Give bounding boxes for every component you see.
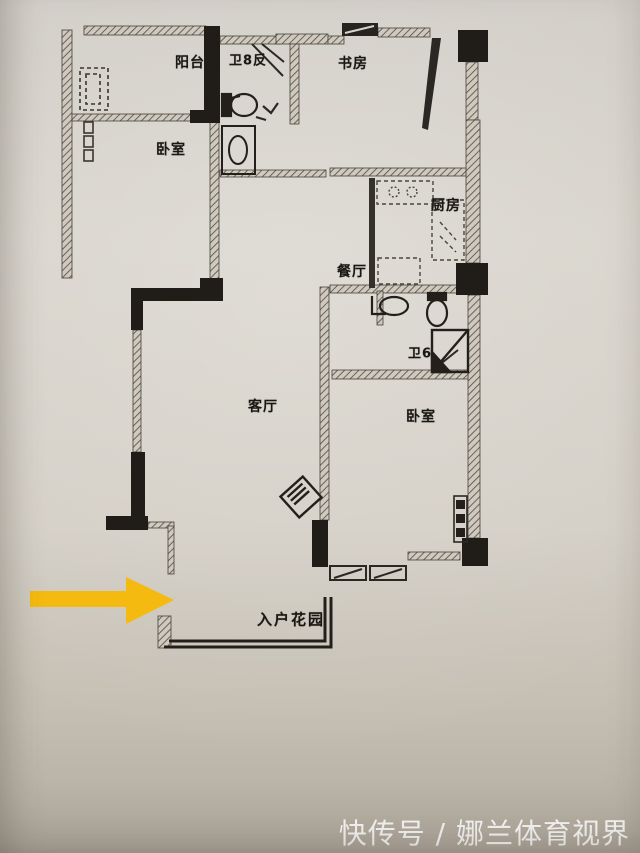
central-wall-foot [312,520,328,567]
room-label-study: 书房 [338,53,368,73]
room-label-kitchen: 厨房 [431,195,461,215]
entry-door-icon [422,38,441,130]
diamond-decor-icon [280,477,321,518]
room-label-entry-garden: 入户花园 [257,609,325,630]
room-label-bedroom-right: 卧室 [406,406,436,426]
step-vents [330,566,406,580]
shower-icon [432,330,468,372]
toilet2-icon [427,293,447,326]
door-mark-icon [256,103,278,120]
kitchen-wall [369,178,375,288]
highlight-arrow [30,577,174,624]
washbasin-icon [222,126,255,174]
watermark: 快传号 / 娜兰体育视界 [339,812,630,852]
floorplan-photo: 阳台 卫8反 书房 卧室 厨房 餐厅 客厅 卫6 卧室 入户花园 快传号 / 娜… [0,0,640,853]
room-label-bedroom-left: 卧室 [156,139,186,159]
column-mid-right [456,263,488,295]
balcony-bath-wall [204,26,220,114]
room-label-bathroom-top: 卫8反 [229,50,267,69]
room-label-living: 客厅 [248,396,278,416]
room-label-balcony: 阳台 [175,52,205,72]
floorplan-drawing [0,0,640,853]
window-icon [342,23,378,36]
room-label-bathroom-right: 卫6 [408,343,432,362]
toilet-icon [222,94,257,116]
bedroom-left-bottom-wall [131,288,223,301]
column-top-right [458,30,488,62]
room-label-dining: 餐厅 [337,261,367,281]
window2-icon [454,496,467,542]
hatched-walls [62,26,480,648]
